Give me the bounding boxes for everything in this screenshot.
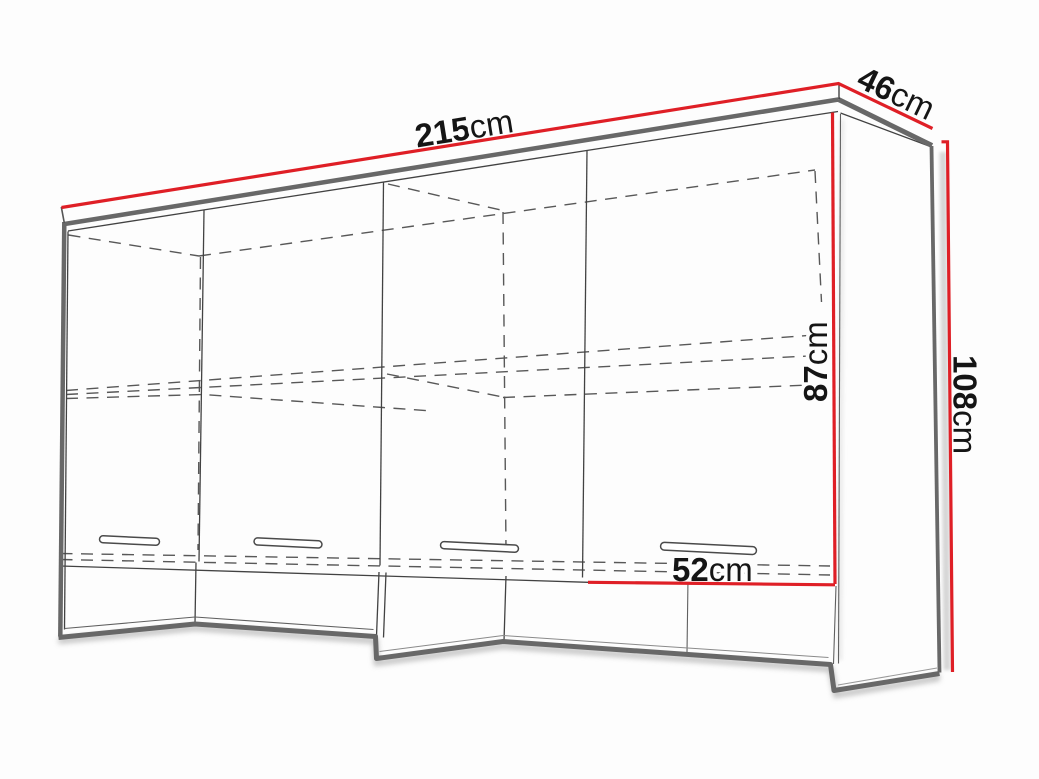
svg-text:215cm: 215cm <box>412 102 516 154</box>
svg-text:108cm: 108cm <box>947 355 984 454</box>
svg-text:87cm: 87cm <box>797 321 834 402</box>
svg-text:46cm: 46cm <box>852 59 941 127</box>
